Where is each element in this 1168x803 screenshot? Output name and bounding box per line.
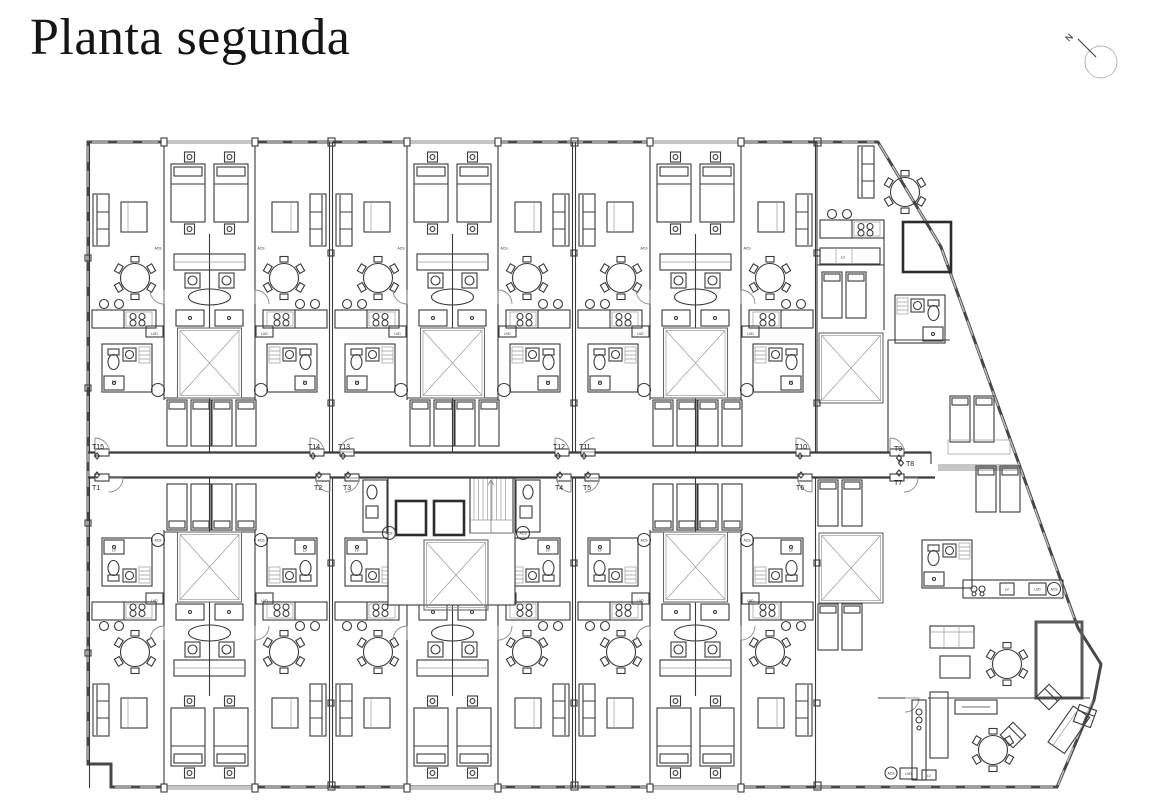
unit-label: T14 [308, 444, 320, 451]
unit-label: T4 [555, 485, 563, 492]
unit-label: T10 [795, 444, 807, 451]
unit-label: T1 [92, 485, 100, 492]
unit-label: T3 [343, 485, 351, 492]
svg-text:ACS: ACS [155, 247, 163, 251]
unit-label: T8 [906, 461, 914, 468]
svg-text:ACS: ACS [258, 539, 266, 543]
svg-text:LVD: LVD [261, 599, 268, 603]
svg-text:LVD: LVD [394, 332, 401, 336]
floor-plan-sheet: Planta segunda [0, 0, 1168, 803]
svg-text:ACS: ACS [501, 247, 509, 251]
unit-label: T5 [583, 485, 591, 492]
svg-text:ACS: ACS [744, 539, 752, 543]
svg-text:LVD: LVD [637, 332, 644, 336]
svg-text:LVD: LVD [151, 332, 158, 336]
svg-text:LVD: LVD [747, 332, 754, 336]
svg-text:LVD: LVD [1034, 588, 1041, 592]
svg-text:ACS: ACS [641, 539, 649, 543]
unit-label: T15 [92, 444, 104, 451]
unit-label: T13 [338, 444, 350, 451]
floor-plan-drawing: T15 T14 T13 T12 T11 T10 T9 T8 T1 T2 T3 T… [0, 0, 1168, 803]
svg-text:ACS: ACS [888, 772, 896, 776]
north-compass: N [1063, 32, 1117, 78]
svg-text:LVD: LVD [504, 332, 511, 336]
unit-label: T7 [894, 480, 902, 487]
unit-label: T11 [579, 444, 591, 451]
stair-elevator-core [363, 478, 540, 610]
svg-text:ACS: ACS [520, 532, 528, 536]
svg-text:LVD: LVD [747, 599, 754, 603]
svg-text:LVD: LVD [151, 599, 158, 603]
svg-text:LVD: LVD [637, 599, 644, 603]
svg-text:ACS: ACS [1051, 588, 1059, 592]
unit-label: T2 [314, 485, 322, 492]
svg-text:ACS: ACS [641, 247, 649, 251]
svg-text:ACS: ACS [258, 247, 266, 251]
unit-label: T12 [553, 444, 565, 451]
svg-text:ACS: ACS [398, 247, 406, 251]
svg-text:ACS: ACS [155, 539, 163, 543]
svg-text:LVD: LVD [905, 772, 912, 776]
unit-label: T6 [796, 485, 804, 492]
unit-label: T9 [894, 446, 902, 453]
north-label: N [1063, 32, 1075, 44]
svg-text:LVD: LVD [261, 332, 268, 336]
svg-text:ACS: ACS [386, 532, 394, 536]
svg-text:ACS: ACS [744, 247, 752, 251]
